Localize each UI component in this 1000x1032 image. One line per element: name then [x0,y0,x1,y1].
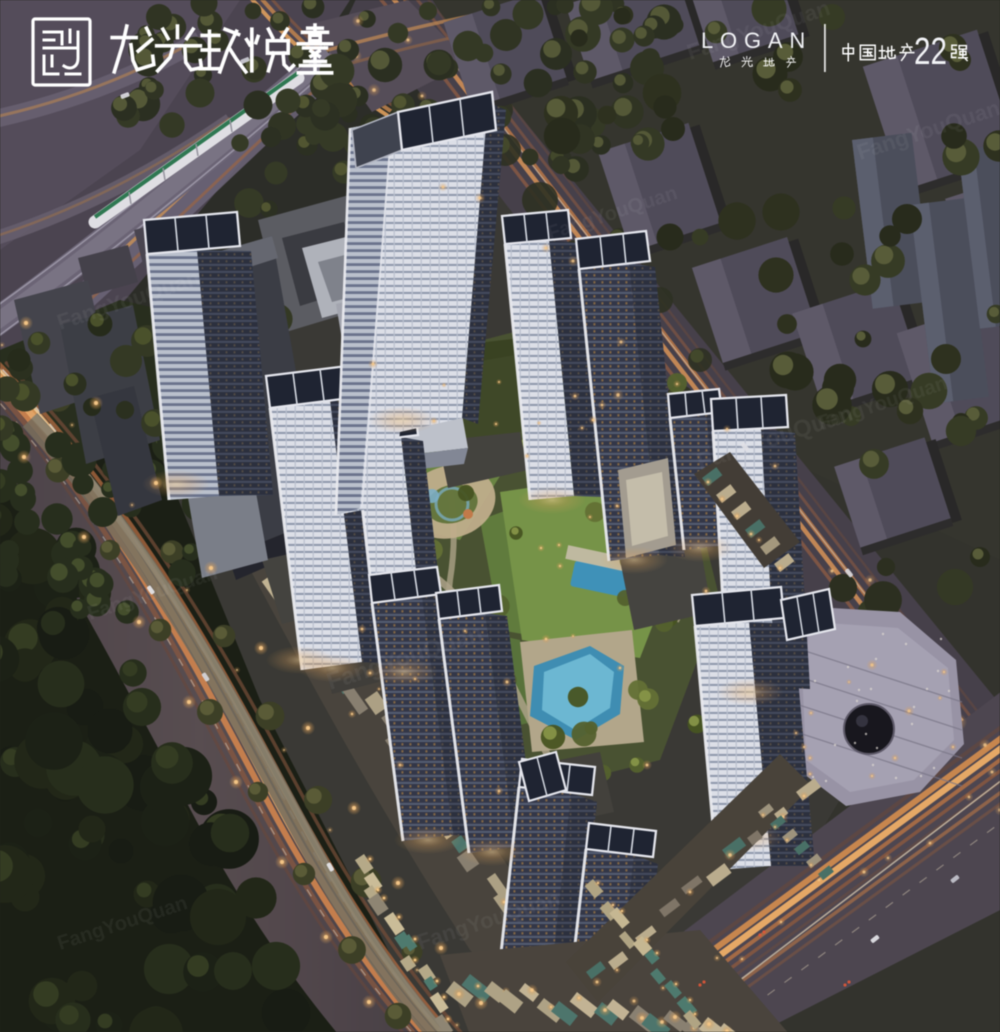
svg-text:LOGAN: LOGAN [701,28,812,53]
svg-text:22: 22 [914,31,947,73]
